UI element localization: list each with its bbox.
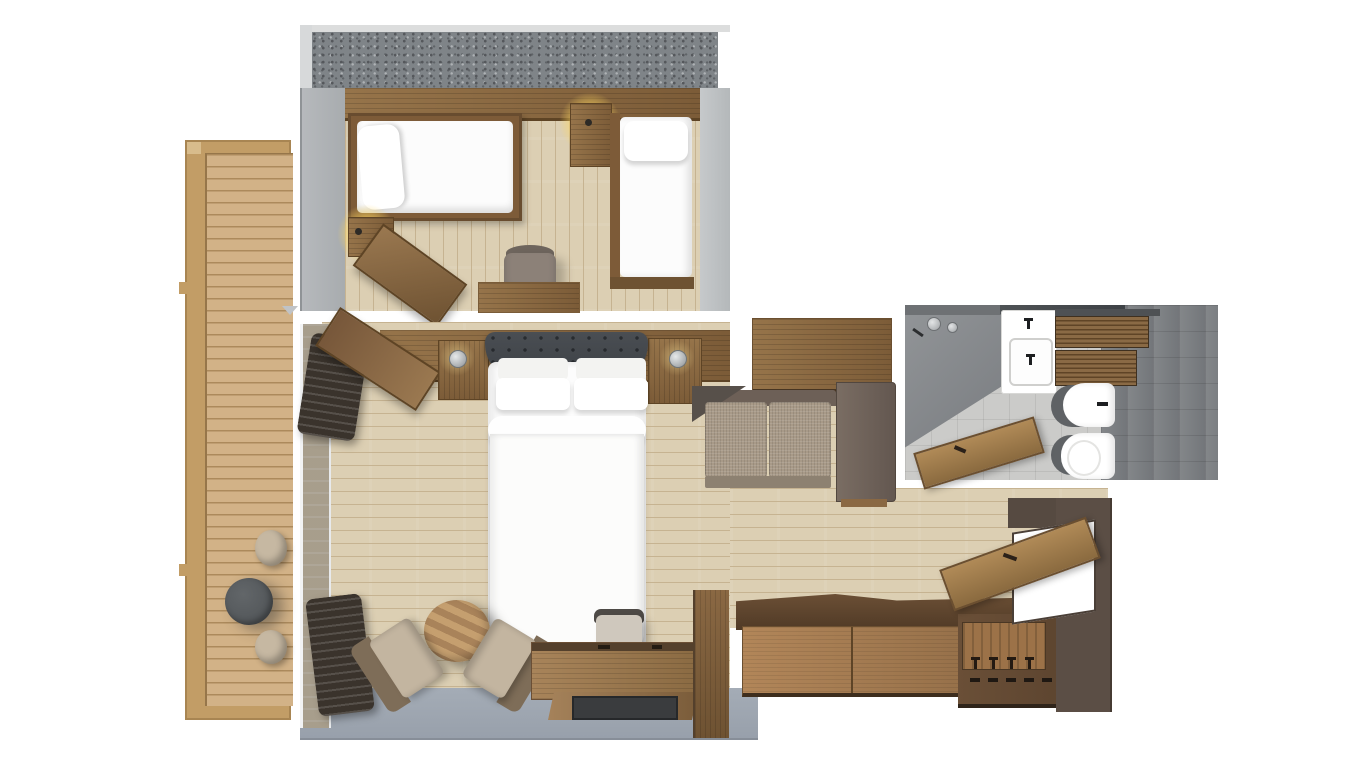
- coat-hook: [992, 660, 995, 669]
- main-desk-top-rail: [532, 643, 701, 651]
- sideboard-door-divider: [851, 627, 853, 693]
- marker-triangle: [282, 306, 298, 315]
- terrace-post-lower: [179, 564, 187, 576]
- sideboard-doors: [742, 626, 962, 697]
- bidet-faucet: [1097, 402, 1108, 406]
- sink-faucet-lower: [1029, 354, 1032, 365]
- single-bed-right-rail: [610, 113, 620, 287]
- terrace-stool-bottom: [255, 630, 287, 664]
- pendant-lamp-left: [355, 228, 362, 235]
- tv-screen: [572, 696, 678, 720]
- sofa: [700, 390, 836, 492]
- floor-plan-scene: [0, 0, 1360, 766]
- drawer-unit-bottom: [1055, 350, 1137, 386]
- coat-hook: [974, 660, 977, 669]
- single-bed-left-pillow: [356, 123, 405, 210]
- vanity-counter-strip: [1055, 309, 1160, 316]
- desk-accessory: [652, 645, 662, 649]
- single-bed-right-pillow: [624, 121, 688, 161]
- sofa-seat-front: [705, 476, 831, 488]
- pillow-front-right: [574, 378, 648, 410]
- terrace-post-upper: [179, 282, 187, 294]
- sofa-cushion-right: [769, 402, 831, 478]
- pendant-lamp-mid: [585, 119, 592, 126]
- pillow-front-left: [496, 378, 570, 410]
- vanity-counter: [1001, 310, 1057, 394]
- main-bedroom: [300, 322, 758, 740]
- twin-bedroom: [300, 25, 730, 311]
- sofa-frame-foot: [841, 499, 887, 507]
- entrance-door-handle: [1003, 553, 1018, 562]
- main-desk: [531, 642, 702, 700]
- wall-sconce-left: [449, 350, 467, 368]
- coat-hook: [1010, 660, 1013, 669]
- sink-faucet: [1027, 318, 1030, 329]
- terrace-round-table: [225, 578, 273, 625]
- desk-accessory: [598, 645, 610, 649]
- terrace-corner-cap: [187, 142, 201, 154]
- coat-hook: [1028, 660, 1031, 669]
- pillow-back-left: [498, 358, 568, 380]
- twin-wall-right: [700, 88, 730, 311]
- shower-head-large: [927, 317, 941, 331]
- twin-wall-edge-top: [300, 25, 730, 32]
- drawer-unit-top: [1055, 316, 1149, 348]
- pillow-back-right: [576, 358, 646, 380]
- wall-sconce-right: [669, 350, 687, 368]
- twin-desk: [478, 282, 580, 313]
- twin-wall-textured-band: [312, 32, 718, 88]
- terrace: [185, 140, 291, 720]
- sofa-cushion-left: [705, 402, 767, 478]
- terrace-stool-top: [255, 530, 287, 566]
- bathroom-door-handle: [954, 445, 967, 453]
- single-bed-right-foot: [610, 277, 694, 289]
- twin-wall-left: [300, 88, 347, 311]
- toilet-bowl-rim: [1067, 440, 1101, 476]
- tv-board: [548, 692, 698, 720]
- wood-side-panel: [693, 590, 729, 738]
- toilet: [1061, 433, 1115, 479]
- bidet: [1063, 383, 1115, 427]
- sofa-side-frame: [836, 382, 896, 502]
- twin-nightstand-mid: [570, 103, 612, 167]
- shower-head-small: [947, 322, 958, 333]
